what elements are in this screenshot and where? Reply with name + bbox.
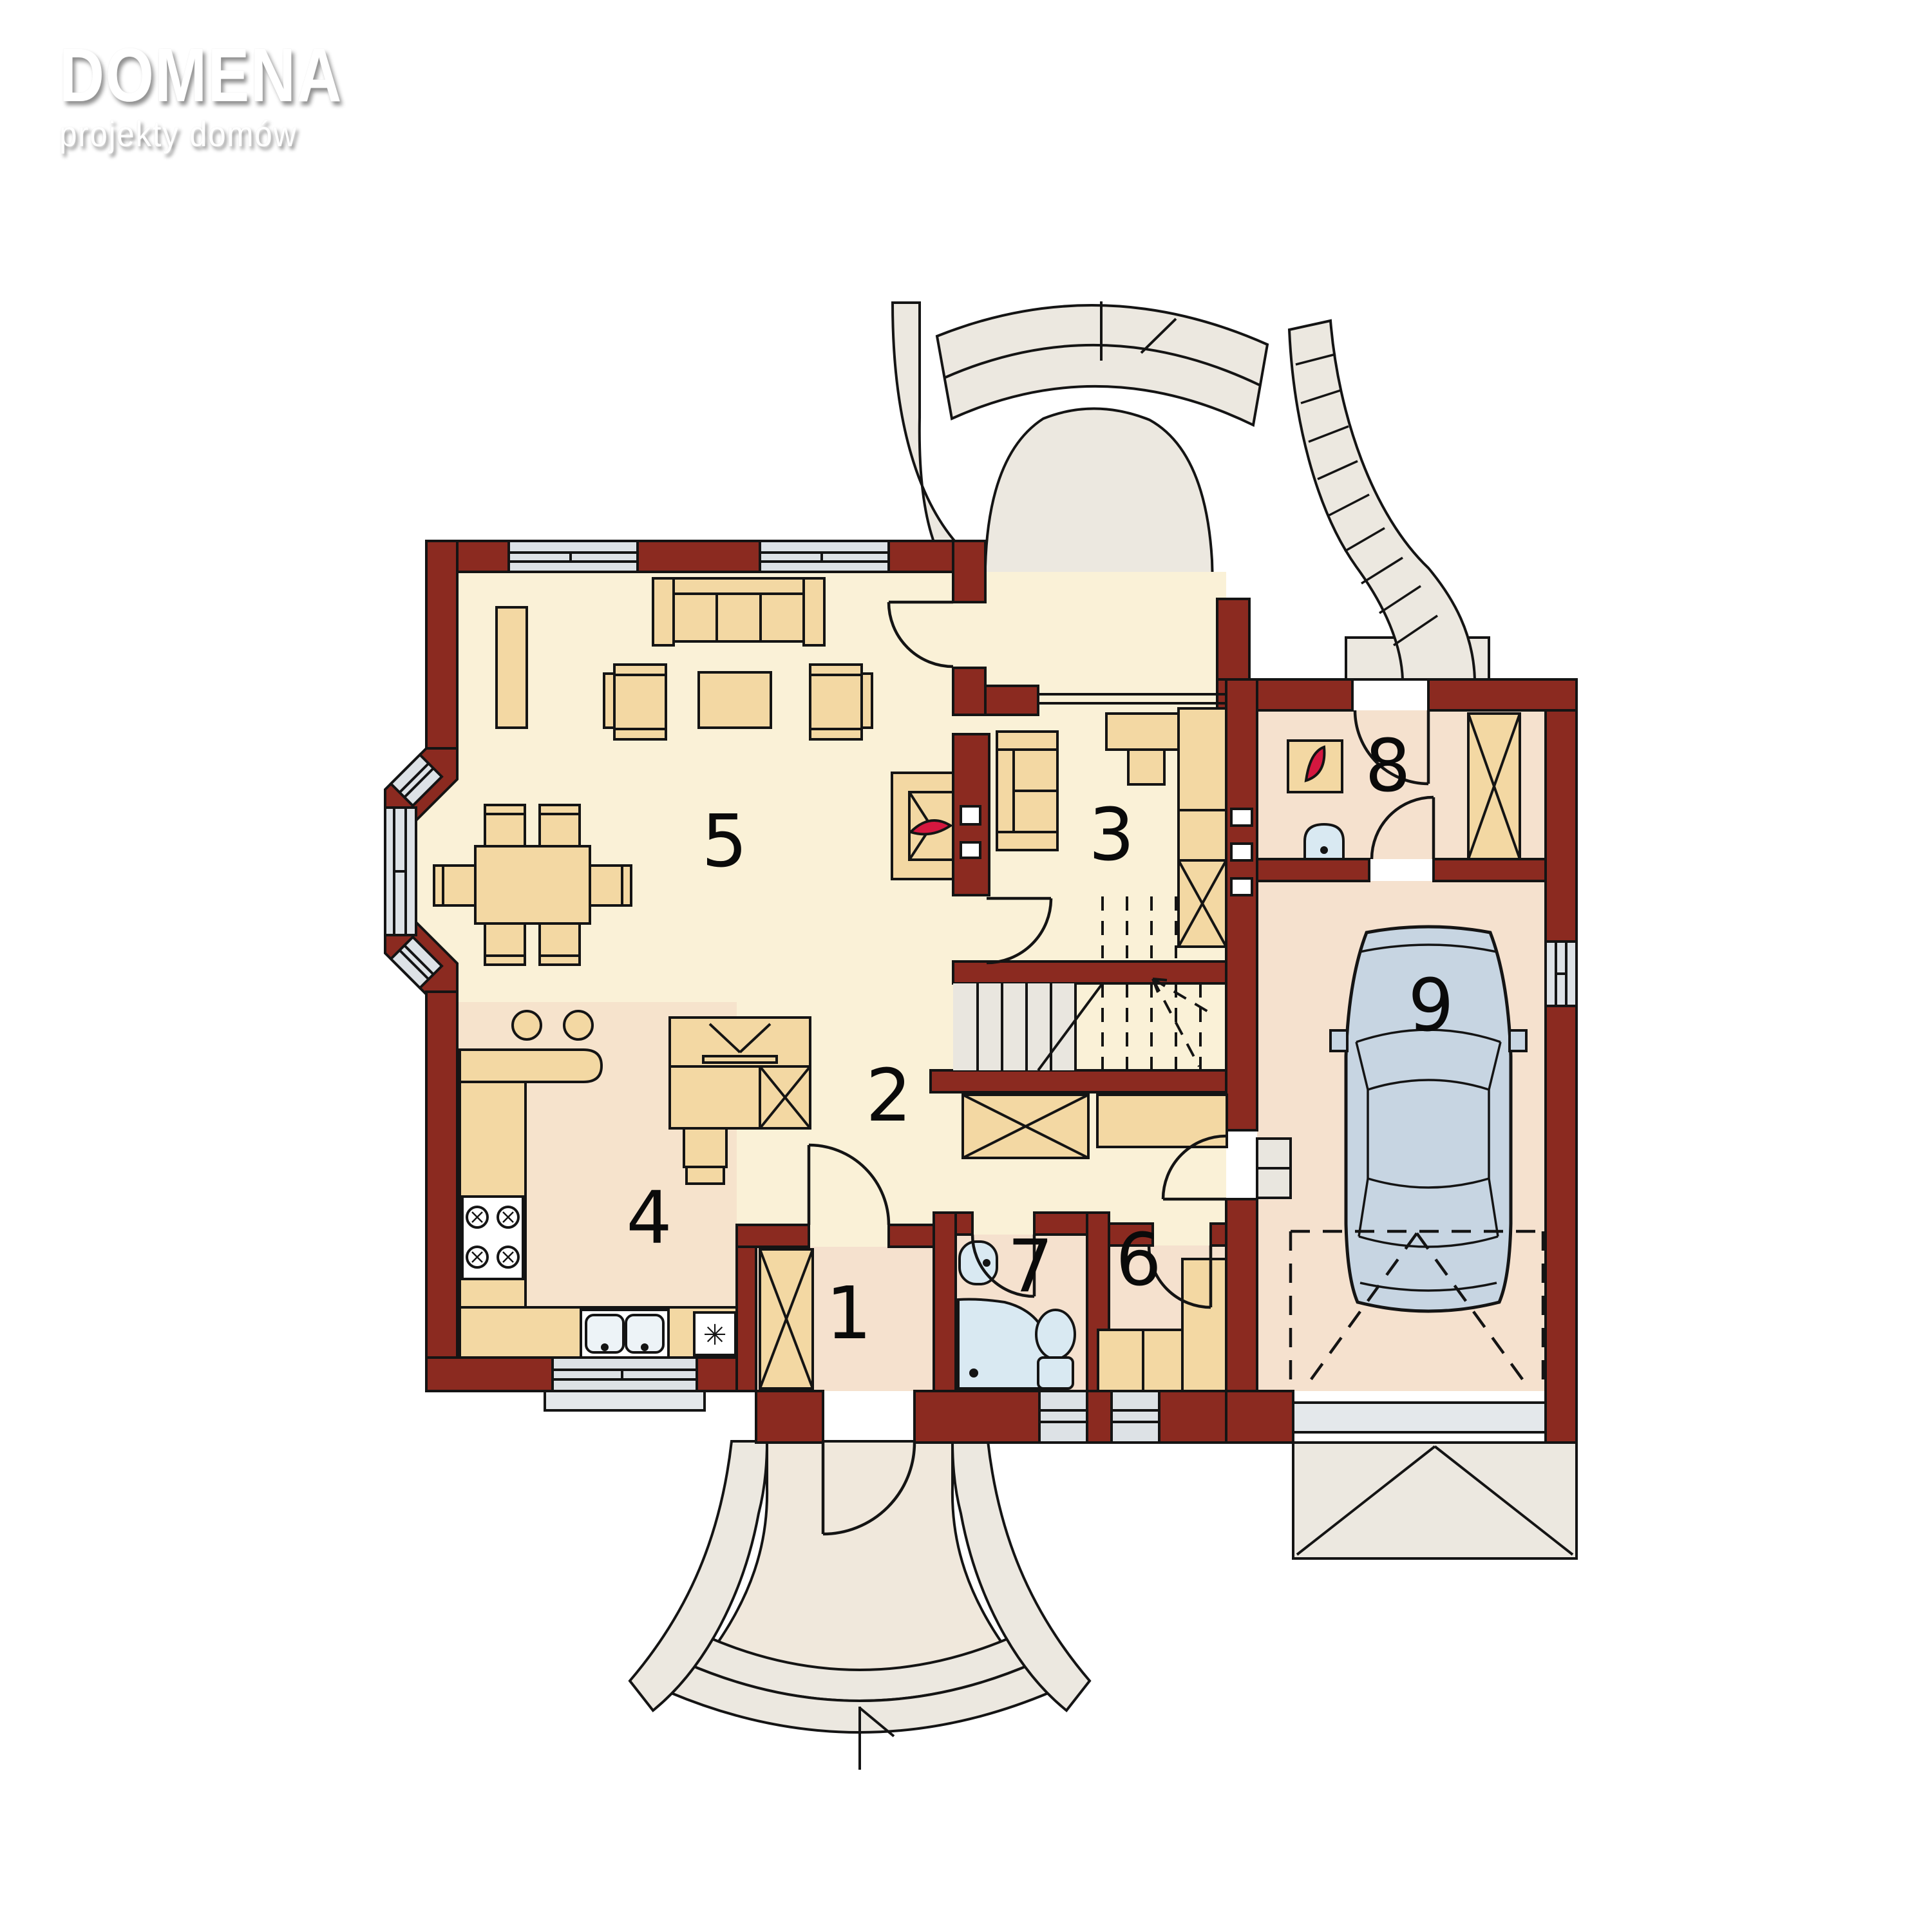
window-garage (1546, 942, 1577, 1006)
stove (462, 1197, 523, 1279)
room-label-6: 6 (1115, 1218, 1161, 1302)
study-cabinet (1179, 708, 1226, 947)
floor-plan: ✳ (0, 0, 1932, 1932)
dining-table (475, 846, 590, 923)
fireplace (892, 773, 953, 879)
boiler-basin (1305, 824, 1343, 859)
company-logo: DOMENA projekty domów (59, 37, 404, 155)
hall-wardrobe (963, 1095, 1088, 1158)
car-mirror-right (1510, 1030, 1526, 1051)
rear-terrace (630, 1441, 1090, 1770)
freezer: ✳ (694, 1312, 735, 1355)
exterior-ramp (1289, 321, 1475, 679)
window-kitchen (545, 1358, 705, 1410)
logo-title: DOMENA (59, 37, 343, 113)
study-sofa (997, 732, 1057, 850)
car-mirror-left (1331, 1030, 1347, 1051)
room-label-1: 1 (826, 1272, 871, 1356)
boiler-wardrobe (1468, 714, 1520, 859)
window-living-top-left (509, 541, 638, 572)
toilet (1036, 1310, 1075, 1388)
garage-entry-steps (1257, 1139, 1291, 1198)
island-shelf (687, 1167, 724, 1184)
sideboard (497, 607, 527, 728)
armchair-right (810, 665, 872, 739)
garage-door (1293, 1403, 1546, 1432)
room-label-8: 8 (1365, 724, 1410, 808)
room-label-3: 3 (1088, 793, 1134, 877)
sofa-three-seat (653, 578, 824, 645)
kitchen-sink (581, 1310, 668, 1358)
freezer-symbol-icon: ✳ (703, 1319, 727, 1352)
room-label-5: 5 (701, 800, 747, 884)
boiler-furnace (1288, 741, 1342, 792)
desk-chair (1128, 750, 1164, 784)
tv-screen (703, 1056, 777, 1063)
logo-subtitle: projekty domów (59, 113, 363, 155)
room-label-2: 2 (866, 1054, 911, 1138)
room-label-7: 7 (1007, 1225, 1053, 1309)
room-label-9: 9 (1408, 964, 1454, 1048)
vestibule-wardrobe (760, 1249, 813, 1388)
window-living-top-right (760, 541, 889, 572)
garage-apron (1293, 1443, 1577, 1558)
coffee-table (699, 672, 771, 728)
window-bay-center (385, 808, 416, 935)
island-chair (684, 1128, 726, 1167)
window-pantry (1112, 1391, 1159, 1443)
window-bathroom (1039, 1391, 1087, 1443)
armchair-left (604, 665, 666, 739)
room-label-4: 4 (626, 1177, 672, 1260)
